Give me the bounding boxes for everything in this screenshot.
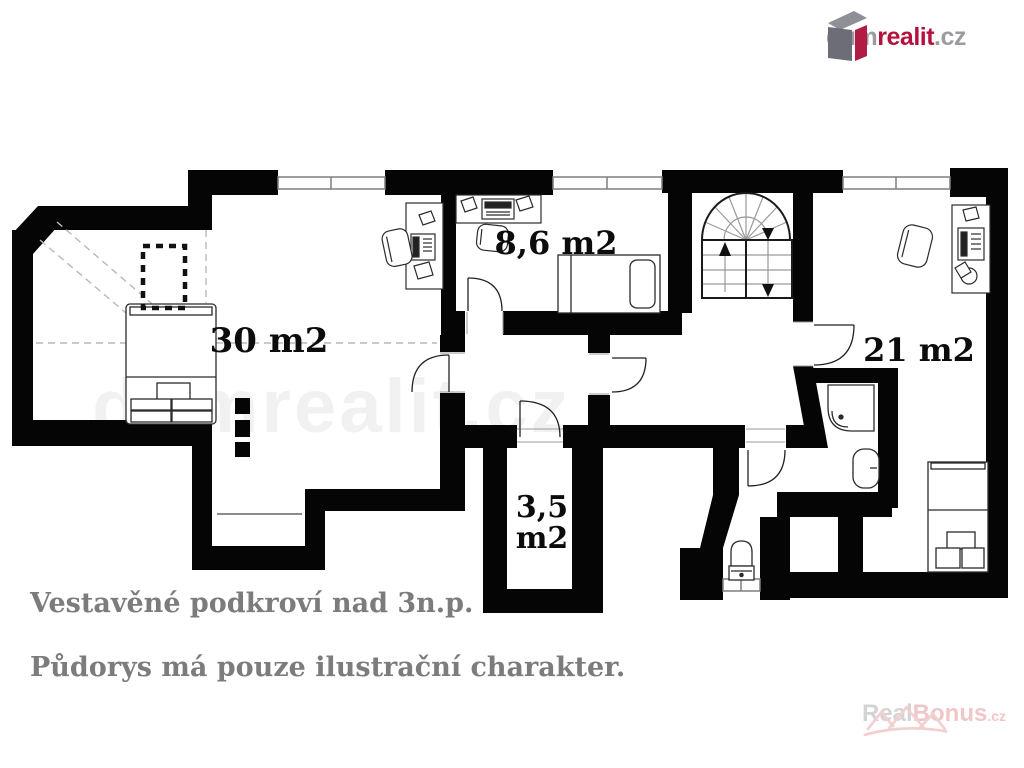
bed-icon-21 — [928, 462, 988, 572]
room-label-21: 21 m2 — [863, 331, 975, 369]
wardrobe-dashed-icon — [143, 246, 185, 308]
realbonus-watermark: RealBonus.cz — [854, 704, 1014, 726]
door-room21 — [793, 322, 854, 366]
desk-icon-30 — [406, 203, 443, 289]
stairs-icon — [702, 193, 792, 298]
shower-icon — [828, 385, 874, 431]
window-room86 — [553, 177, 662, 189]
caption-disclaimer: Půdorys má pouze ilustrační charakter. — [30, 652, 625, 683]
logo-suffix: .cz — [934, 23, 966, 51]
dumrealit-logo: dumrealit.cz — [826, 8, 966, 50]
bed-icon-30 — [126, 304, 216, 424]
realbonus-suffix: .cz — [987, 708, 1006, 724]
caption-floor-title: Vestavěné podkroví nad 3n.p. — [30, 588, 473, 619]
realbonus-roofs-icon — [854, 704, 964, 736]
dumrealit-logo-icon — [826, 8, 871, 62]
door-room86 — [467, 278, 503, 334]
door-hall-corridor — [589, 354, 646, 394]
floor-plan-image: dumrealit.cz — [0, 0, 1024, 768]
door-wc — [746, 429, 785, 486]
sink-icon — [853, 449, 879, 488]
room-label-30: 30 m2 — [210, 321, 329, 361]
chair-icon-21 — [896, 223, 935, 269]
chimney-squares — [235, 398, 250, 457]
logo-accent: realit — [877, 23, 934, 51]
toilet-icon — [729, 541, 754, 580]
window-room21 — [843, 177, 950, 189]
bed-icon-86 — [558, 255, 660, 313]
desk-icon-21 — [952, 205, 990, 293]
room-label-86: 8,6 m2 — [495, 224, 618, 262]
desk-icon-86 — [456, 195, 541, 223]
room-label-35-line2: m2 — [516, 521, 569, 556]
window-wc — [723, 579, 760, 591]
window-room30 — [278, 177, 385, 189]
room-label-35-line1: 3,5 — [516, 490, 568, 525]
